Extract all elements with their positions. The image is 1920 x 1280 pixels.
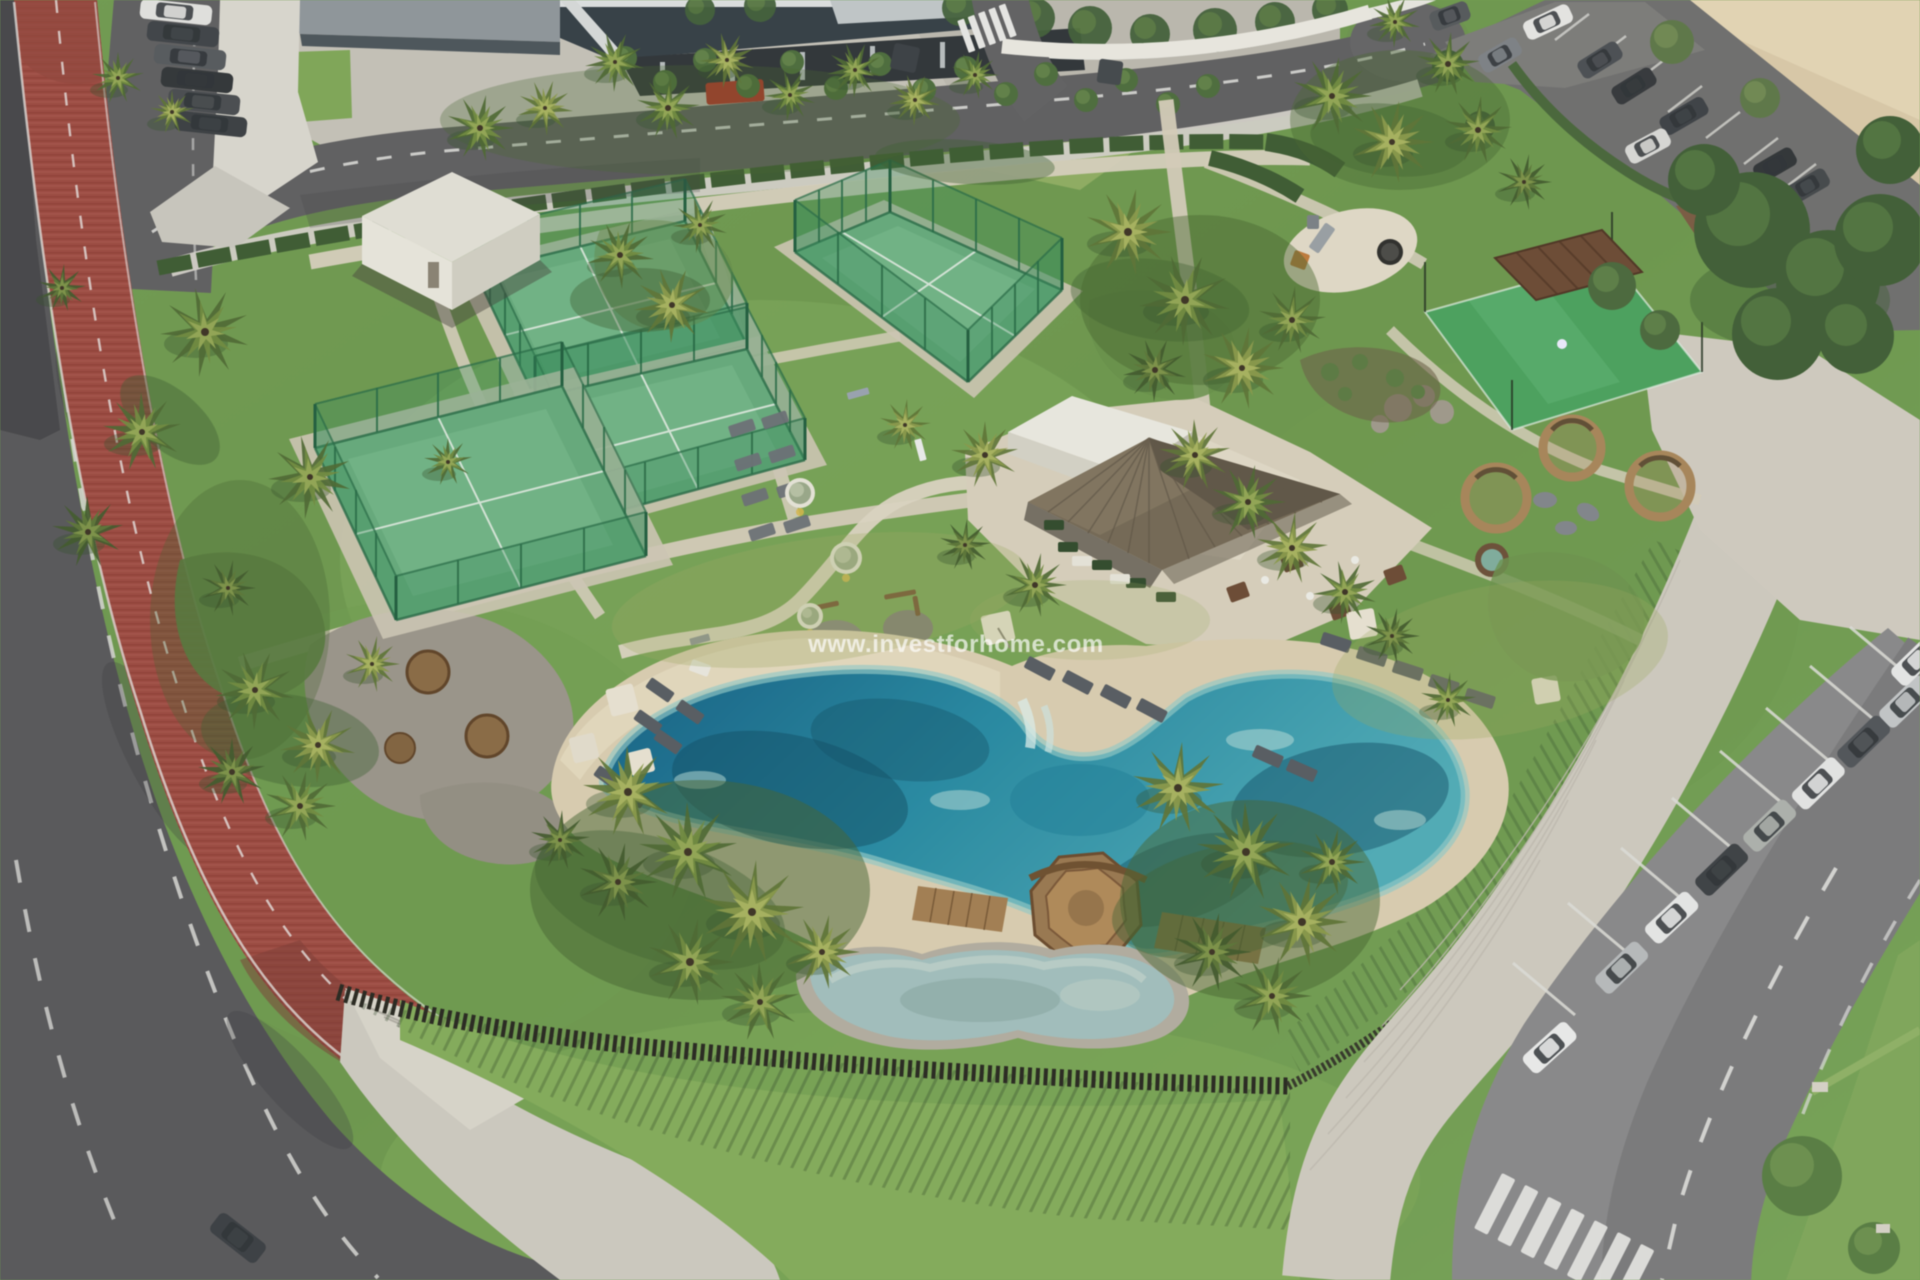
svg-text:www.investforhome.com: www.investforhome.com — [807, 631, 1104, 658]
